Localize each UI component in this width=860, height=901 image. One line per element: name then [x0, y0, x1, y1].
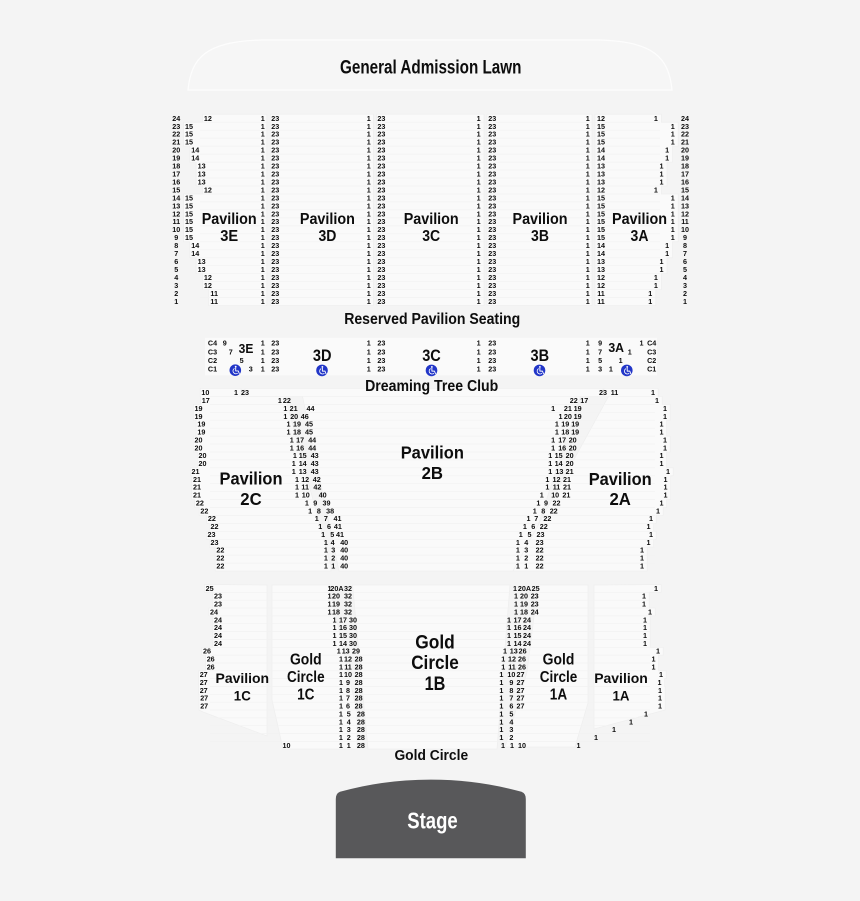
svg-text:Pavilion: Pavilion [300, 211, 355, 228]
svg-text:1: 1 [647, 538, 651, 547]
svg-text:7: 7 [229, 347, 233, 356]
svg-text:3B: 3B [531, 346, 550, 365]
svg-text:12: 12 [204, 185, 212, 194]
svg-text:27: 27 [200, 702, 208, 711]
svg-text:23: 23 [599, 388, 607, 397]
svg-text:1: 1 [654, 114, 658, 123]
svg-text:Pavilion: Pavilion [404, 211, 459, 228]
svg-text:1: 1 [586, 297, 590, 306]
svg-text:Circle: Circle [411, 652, 459, 674]
svg-text:23: 23 [377, 339, 385, 348]
svg-text:Gold: Gold [415, 632, 455, 654]
svg-text:3C: 3C [422, 228, 440, 245]
svg-text:2B: 2B [422, 463, 443, 483]
svg-text:25: 25 [206, 584, 214, 593]
svg-text:1: 1 [655, 396, 659, 405]
svg-text:1: 1 [663, 443, 667, 452]
svg-text:11: 11 [210, 297, 218, 306]
svg-text:5: 5 [598, 356, 602, 365]
svg-text:1: 1 [347, 741, 351, 750]
svg-text:1: 1 [324, 562, 328, 571]
svg-text:1A: 1A [613, 688, 630, 704]
svg-text:23: 23 [488, 365, 496, 374]
svg-text:1B: 1B [425, 673, 446, 695]
svg-text:Stage: Stage [407, 807, 457, 833]
svg-text:Pavilion: Pavilion [513, 211, 568, 228]
svg-text:Pavilion: Pavilion [594, 670, 648, 686]
svg-text:C4: C4 [647, 339, 656, 348]
svg-text:1: 1 [665, 249, 669, 258]
svg-text:23: 23 [377, 365, 385, 374]
svg-text:3: 3 [249, 365, 253, 374]
svg-text:1: 1 [477, 347, 481, 356]
svg-text:23: 23 [488, 297, 496, 306]
svg-text:23: 23 [241, 388, 249, 397]
svg-text:22: 22 [216, 562, 224, 571]
svg-text:1: 1 [477, 365, 481, 374]
svg-text:C1: C1 [208, 365, 217, 374]
svg-text:1: 1 [339, 741, 343, 750]
svg-text:1: 1 [536, 499, 540, 508]
svg-text:1: 1 [367, 356, 371, 365]
svg-text:28: 28 [357, 741, 365, 750]
svg-text:23: 23 [271, 339, 279, 348]
svg-text:C4: C4 [208, 339, 217, 348]
svg-text:1: 1 [510, 741, 514, 750]
svg-text:9: 9 [223, 339, 227, 348]
svg-text:Gold: Gold [290, 651, 322, 668]
svg-text:23: 23 [488, 356, 496, 365]
svg-text:1A: 1A [550, 686, 567, 703]
svg-text:1: 1 [278, 396, 282, 405]
svg-text:1: 1 [654, 281, 658, 290]
svg-text:Pavilion: Pavilion [202, 211, 257, 228]
svg-text:Pavilion: Pavilion [589, 469, 652, 489]
svg-text:26: 26 [207, 662, 215, 671]
svg-text:1: 1 [261, 297, 265, 306]
svg-text:1: 1 [654, 185, 658, 194]
svg-text:1: 1 [654, 584, 658, 593]
svg-text:1: 1 [328, 607, 332, 616]
svg-text:1: 1 [477, 339, 481, 348]
svg-text:3E: 3E [239, 342, 254, 356]
svg-text:1: 1 [295, 491, 299, 500]
svg-text:10: 10 [283, 741, 291, 750]
svg-text:3C: 3C [422, 346, 441, 365]
svg-text:27: 27 [517, 702, 525, 711]
svg-text:Reserved Pavilion Seating: Reserved Pavilion Seating [344, 311, 520, 328]
svg-text:23: 23 [271, 356, 279, 365]
svg-text:3D: 3D [313, 346, 332, 365]
svg-text:1: 1 [648, 607, 652, 616]
svg-text:24: 24 [531, 607, 539, 616]
svg-text:Circle: Circle [287, 669, 325, 686]
svg-text:1: 1 [367, 297, 371, 306]
svg-text:10: 10 [518, 741, 526, 750]
svg-text:1: 1 [648, 297, 652, 306]
svg-text:1: 1 [261, 347, 265, 356]
svg-text:1: 1 [663, 412, 667, 421]
svg-text:1: 1 [174, 297, 178, 306]
svg-text:3: 3 [598, 365, 602, 374]
svg-text:23: 23 [488, 339, 496, 348]
svg-text:1: 1 [660, 177, 664, 186]
svg-text:12: 12 [204, 114, 212, 123]
svg-text:1: 1 [660, 499, 664, 508]
svg-text:1: 1 [643, 639, 647, 648]
svg-text:1: 1 [664, 491, 668, 500]
svg-text:Gold: Gold [543, 651, 575, 668]
svg-text:7: 7 [598, 347, 602, 356]
svg-text:1: 1 [644, 709, 648, 718]
svg-text:1: 1 [261, 356, 265, 365]
svg-text:1C: 1C [234, 688, 251, 704]
svg-text:2C: 2C [240, 489, 262, 509]
svg-text:6: 6 [531, 522, 535, 531]
svg-text:1: 1 [640, 339, 644, 348]
svg-text:1: 1 [658, 702, 662, 711]
svg-text:1: 1 [640, 562, 644, 571]
svg-text:Pavilion: Pavilion [220, 469, 283, 489]
svg-text:1: 1 [619, 356, 623, 365]
svg-text:C2: C2 [208, 356, 217, 365]
svg-text:1: 1 [656, 506, 660, 515]
svg-text:1: 1 [628, 347, 632, 356]
svg-text:1: 1 [586, 339, 590, 348]
svg-text:1: 1 [586, 347, 590, 356]
svg-text:1: 1 [612, 725, 616, 734]
svg-text:1: 1 [660, 265, 664, 274]
svg-text:1: 1 [524, 562, 528, 571]
svg-text:1: 1 [660, 459, 664, 468]
svg-text:C3: C3 [647, 347, 656, 356]
svg-text:1: 1 [477, 297, 481, 306]
svg-text:5: 5 [240, 356, 244, 365]
svg-text:1: 1 [652, 662, 656, 671]
svg-text:1C: 1C [297, 686, 314, 703]
svg-text:1: 1 [477, 356, 481, 365]
svg-text:C3: C3 [208, 347, 217, 356]
svg-text:17: 17 [202, 396, 210, 405]
svg-text:1: 1 [367, 339, 371, 348]
svg-text:22: 22 [536, 562, 544, 571]
svg-text:23: 23 [488, 347, 496, 356]
svg-text:1: 1 [629, 717, 633, 726]
svg-text:1: 1 [683, 297, 687, 306]
svg-text:Gold Circle: Gold Circle [394, 748, 468, 764]
svg-text:3A: 3A [608, 341, 624, 355]
svg-text:Dreaming Tree Club: Dreaming Tree Club [365, 378, 498, 395]
svg-text:9: 9 [598, 339, 602, 348]
svg-text:1: 1 [234, 388, 238, 397]
svg-text:1: 1 [367, 365, 371, 374]
svg-text:1: 1 [261, 365, 265, 374]
svg-text:Circle: Circle [540, 669, 578, 686]
svg-text:1: 1 [586, 365, 590, 374]
svg-text:1: 1 [671, 233, 675, 242]
svg-text:1: 1 [331, 562, 335, 571]
svg-text:Pavilion: Pavilion [401, 443, 464, 463]
svg-text:Pavilion: Pavilion [612, 211, 667, 228]
svg-text:1: 1 [527, 514, 531, 523]
svg-text:24: 24 [214, 639, 222, 648]
svg-text:21: 21 [562, 491, 570, 500]
svg-text:C1: C1 [647, 365, 656, 374]
svg-text:1: 1 [577, 741, 581, 750]
svg-text:1: 1 [594, 733, 598, 742]
svg-text:3A: 3A [631, 228, 649, 245]
svg-text:1: 1 [523, 522, 527, 531]
svg-text:20: 20 [199, 459, 207, 468]
svg-text:1: 1 [665, 154, 669, 163]
svg-text:23: 23 [271, 365, 279, 374]
svg-text:1: 1 [671, 138, 675, 147]
svg-text:3D: 3D [318, 228, 336, 245]
svg-text:Pavilion: Pavilion [216, 670, 270, 686]
svg-text:23: 23 [271, 347, 279, 356]
svg-text:11: 11 [611, 388, 619, 397]
svg-text:23: 23 [271, 297, 279, 306]
svg-text:2A: 2A [610, 489, 632, 509]
svg-text:1: 1 [551, 404, 555, 413]
svg-text:3B: 3B [531, 228, 549, 245]
svg-text:1: 1 [586, 356, 590, 365]
svg-text:23: 23 [377, 297, 385, 306]
svg-text:11: 11 [597, 297, 605, 306]
svg-text:1: 1 [367, 347, 371, 356]
svg-text:40: 40 [340, 562, 348, 571]
svg-text:3E: 3E [220, 228, 238, 245]
svg-text:23: 23 [377, 347, 385, 356]
svg-text:1: 1 [261, 339, 265, 348]
svg-text:1: 1 [501, 741, 505, 750]
svg-text:1: 1 [545, 483, 549, 492]
svg-text:1: 1 [308, 506, 312, 515]
svg-text:General Admission Lawn: General Admission Lawn [340, 57, 521, 79]
svg-text:1: 1 [642, 600, 646, 609]
svg-text:23: 23 [377, 356, 385, 365]
svg-text:1: 1 [516, 562, 520, 571]
svg-text:1: 1 [656, 647, 660, 656]
svg-text:1: 1 [609, 365, 613, 374]
svg-text:C2: C2 [647, 356, 656, 365]
